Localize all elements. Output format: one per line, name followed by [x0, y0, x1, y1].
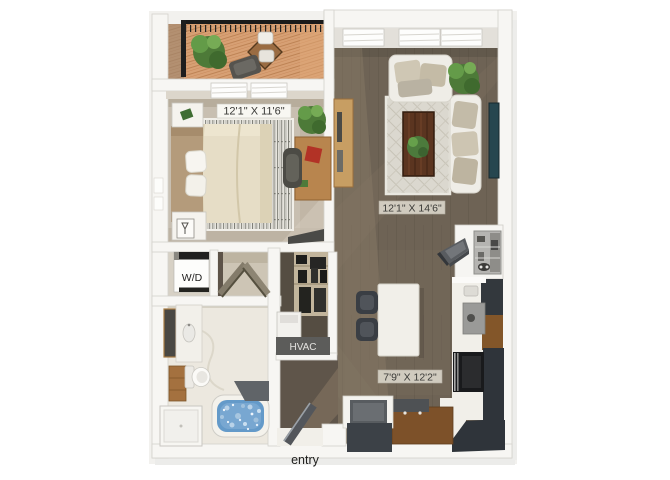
svg-text:12'1" X 14'6": 12'1" X 14'6"	[382, 203, 442, 215]
svg-text:HVAC: HVAC	[289, 342, 316, 353]
svg-text:entry: entry	[291, 453, 320, 467]
svg-text:12'1" X 11'6": 12'1" X 11'6"	[223, 106, 284, 118]
svg-text:W/D: W/D	[182, 272, 203, 284]
svg-text:7'9" X 12'2": 7'9" X 12'2"	[383, 372, 437, 384]
